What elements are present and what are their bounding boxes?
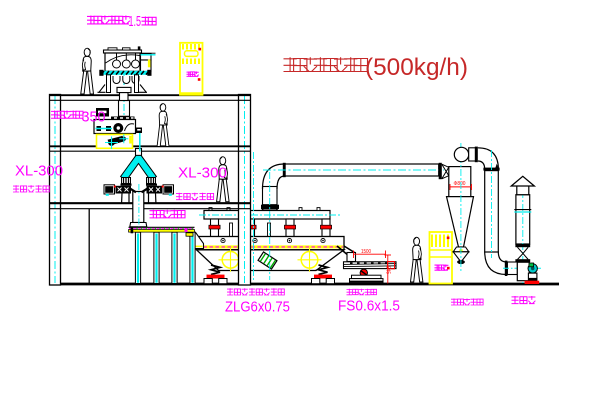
svg-text:545: 545	[385, 266, 391, 274]
svg-text:350: 350	[82, 110, 106, 126]
svg-text:Φ800: Φ800	[454, 181, 466, 187]
svg-text:ZLG6x0.75: ZLG6x0.75	[225, 300, 290, 316]
svg-text:XL-300: XL-300	[178, 166, 227, 182]
svg-text:1500: 1500	[361, 249, 371, 255]
svg-text:FS0.6x1.5: FS0.6x1.5	[338, 299, 400, 315]
svg-text:(500kg/h): (500kg/h)	[365, 54, 468, 81]
svg-text:XL-300: XL-300	[15, 164, 63, 180]
svg-text:1.5: 1.5	[129, 13, 142, 30]
